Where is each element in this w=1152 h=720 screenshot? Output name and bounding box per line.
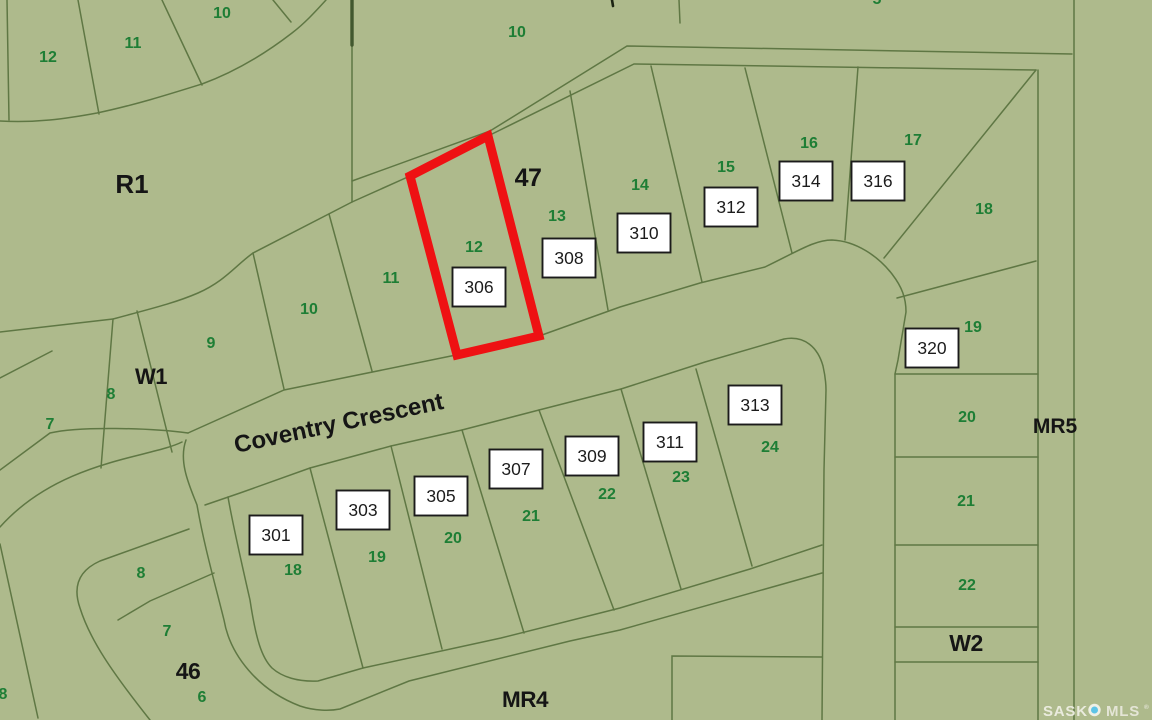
svg-text:306: 306 — [464, 277, 493, 297]
svg-text:305: 305 — [426, 486, 455, 506]
svg-text:SASK: SASK — [1043, 703, 1088, 720]
svg-text:6: 6 — [198, 689, 207, 706]
svg-text:307: 307 — [501, 459, 530, 479]
svg-text:11: 11 — [383, 270, 400, 287]
svg-text:46: 46 — [176, 658, 201, 684]
svg-text:20: 20 — [444, 530, 462, 547]
svg-text:311: 311 — [656, 432, 684, 452]
svg-text:21: 21 — [522, 508, 540, 525]
svg-text:9: 9 — [207, 335, 216, 352]
svg-text:22: 22 — [958, 577, 976, 594]
svg-text:10: 10 — [508, 24, 526, 41]
svg-text:13: 13 — [548, 208, 566, 225]
svg-text:R1: R1 — [115, 169, 148, 199]
svg-text:19: 19 — [368, 549, 386, 566]
svg-text:10: 10 — [300, 301, 318, 318]
svg-text:W2: W2 — [949, 630, 983, 656]
svg-text:18: 18 — [975, 201, 993, 218]
svg-text:24: 24 — [761, 439, 779, 456]
svg-text:17: 17 — [904, 132, 922, 149]
svg-text:309: 309 — [577, 446, 606, 466]
svg-text:®: ® — [1144, 703, 1149, 711]
svg-text:313: 313 — [740, 395, 769, 415]
svg-text:18: 18 — [284, 562, 302, 579]
svg-text:7: 7 — [46, 416, 55, 433]
svg-text:5: 5 — [873, 0, 882, 8]
svg-text:MR5: MR5 — [1033, 415, 1078, 438]
svg-text:7: 7 — [163, 623, 172, 640]
svg-text:314: 314 — [791, 171, 820, 191]
svg-text:23: 23 — [672, 469, 690, 486]
svg-text:8: 8 — [107, 386, 116, 403]
svg-text:8: 8 — [0, 686, 8, 703]
svg-text:20: 20 — [958, 409, 976, 426]
svg-text:22: 22 — [598, 486, 616, 503]
svg-text:W1: W1 — [135, 364, 167, 389]
svg-text:11: 11 — [125, 35, 142, 52]
svg-text:21: 21 — [957, 493, 975, 510]
svg-text:MR4: MR4 — [502, 687, 549, 712]
svg-text:16: 16 — [800, 135, 818, 152]
svg-text:12: 12 — [39, 49, 57, 66]
svg-text:15: 15 — [717, 159, 735, 176]
svg-text:308: 308 — [554, 248, 583, 268]
svg-text:10: 10 — [213, 5, 231, 22]
svg-text:303: 303 — [348, 500, 377, 520]
svg-text:312: 312 — [716, 197, 745, 217]
svg-text:14: 14 — [631, 177, 649, 194]
svg-text:MLS: MLS — [1106, 703, 1140, 720]
svg-text:8: 8 — [137, 565, 146, 582]
svg-text:12: 12 — [465, 239, 483, 256]
svg-text:301: 301 — [261, 525, 290, 545]
svg-text:316: 316 — [863, 171, 892, 191]
svg-text:19: 19 — [964, 319, 982, 336]
svg-text:47: 47 — [515, 164, 542, 192]
svg-text:310: 310 — [629, 223, 658, 243]
svg-text:320: 320 — [917, 338, 946, 358]
